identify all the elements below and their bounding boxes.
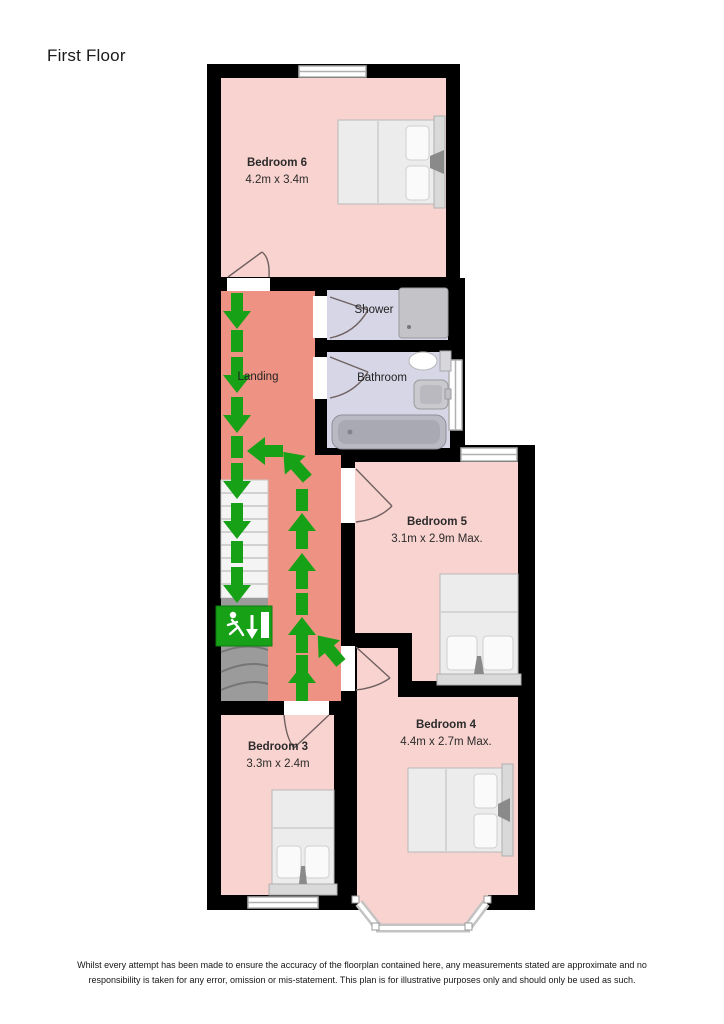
bath-icon xyxy=(332,415,446,449)
toilet-icon xyxy=(409,351,451,371)
bed-icon xyxy=(338,116,445,208)
bed-icon xyxy=(269,790,337,895)
disclaimer-text: Whilst every attempt has been made to en… xyxy=(57,958,667,988)
bathroom-label: Bathroom xyxy=(338,370,426,387)
room-name: Bedroom 3 xyxy=(212,739,344,756)
room-dims: 3.3m x 2.4m xyxy=(212,756,344,773)
room-dims: 4.4m x 2.7m Max. xyxy=(377,734,515,751)
bed-icon xyxy=(437,574,521,685)
bedroom6-label: Bedroom 6 4.2m x 3.4m xyxy=(217,155,337,189)
room-name: Bedroom 4 xyxy=(377,717,515,734)
room-dims: 3.1m x 2.9m Max. xyxy=(367,531,507,548)
bedroom5-label: Bedroom 5 3.1m x 2.9m Max. xyxy=(367,514,507,548)
bed-icon xyxy=(408,764,513,856)
bedroom3-label: Bedroom 3 3.3m x 2.4m xyxy=(212,739,344,773)
floorplan-page: First Floor xyxy=(0,0,724,1024)
room-name: Bedroom 6 xyxy=(217,155,337,172)
landing-label: Landing xyxy=(230,369,286,386)
room-name: Bedroom 5 xyxy=(367,514,507,531)
floorplan-graphic xyxy=(0,0,724,1024)
room-dims: 4.2m x 3.4m xyxy=(217,172,337,189)
shower-label: Shower xyxy=(338,302,410,319)
bedroom4-label: Bedroom 4 4.4m x 2.7m Max. xyxy=(377,717,515,751)
exit-sign-icon xyxy=(216,606,272,646)
